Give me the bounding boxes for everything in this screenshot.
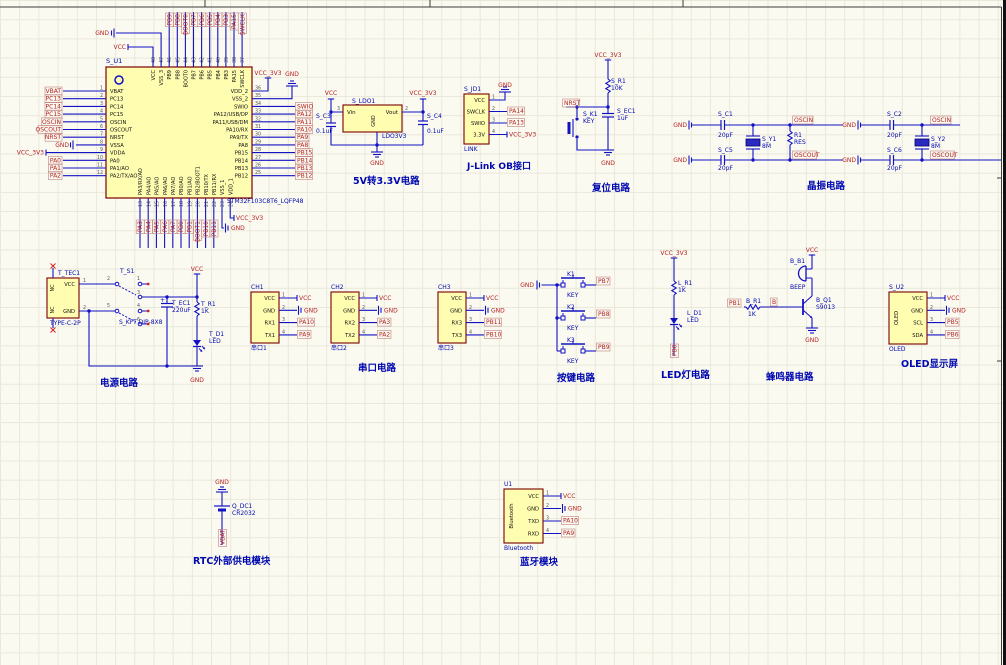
pin-name: RX1 <box>265 321 275 327</box>
ldo-designator: S_LDO1 <box>352 98 375 105</box>
pin-name: VCC <box>912 296 923 302</box>
key-contact[interactable] <box>561 316 565 320</box>
vlabel-group: 23 <box>220 201 226 207</box>
resistor-LR1[interactable] <box>672 281 676 295</box>
led-value: LED <box>687 317 699 324</box>
vlabel-group: PB6 <box>198 13 206 27</box>
pin-name: GND <box>63 309 75 315</box>
pin-name: PB3 <box>224 70 230 80</box>
oled-side-text: OLED <box>894 311 900 325</box>
power-label: VCC <box>325 90 337 97</box>
power-label: VCC_3V3 <box>409 90 436 97</box>
pin-number: 37 <box>240 57 246 63</box>
pin-number: 38 <box>232 57 238 63</box>
net-label: PA4 <box>145 221 152 232</box>
title-power: 电源电路 <box>100 377 139 389</box>
net-label: PA10 <box>563 518 578 525</box>
resistor-R1[interactable] <box>788 131 792 145</box>
vlabel-group: PA4/AO <box>146 177 152 195</box>
led-designator: L_D1 <box>687 310 702 317</box>
pin-name: PB9 <box>167 70 173 80</box>
pin-name: GND <box>263 308 275 314</box>
power-label: GND <box>805 337 819 344</box>
pin-number: 2 <box>405 106 408 112</box>
junction <box>375 143 378 146</box>
vlabel-group: 16 <box>163 201 169 207</box>
pin-number: 3 <box>337 106 340 112</box>
pin-name: PA6/AO <box>163 177 169 195</box>
transistor-BQ1 <box>803 296 812 304</box>
resistor-TR1[interactable] <box>195 302 199 316</box>
pin-name: VCC <box>451 296 462 302</box>
oled-designator: S_U2 <box>889 284 904 291</box>
net-label: PB5 <box>947 319 959 326</box>
pin-name: PA2/TX/AO <box>110 174 137 180</box>
vlabel-group: 48 <box>151 57 157 63</box>
vlabel-group: SWCLK <box>238 13 246 35</box>
power-label: GND <box>215 479 229 486</box>
net-label: OSCIN <box>794 117 813 124</box>
pin-number: 3 <box>137 290 140 296</box>
cap-designator: T_EC1 <box>171 300 191 307</box>
vlabel-group: PB10/TX <box>204 173 210 195</box>
vlabel-group: 40 <box>216 57 222 63</box>
vlabel-group: 38 <box>232 57 238 63</box>
net-label: PB5 <box>207 14 214 26</box>
pin-name: PA8 <box>238 143 248 149</box>
switch-contact[interactable] <box>115 282 119 286</box>
button-designator: S_K1 <box>583 111 598 118</box>
switch-contact[interactable] <box>138 309 142 313</box>
pin-end <box>147 283 149 285</box>
net-label: OSCIN <box>42 119 61 126</box>
resistor-value: 1K <box>201 308 210 315</box>
vlabel-group: 39 <box>224 57 230 63</box>
key-value: KEY <box>567 325 579 332</box>
vlabel-group: PB0 <box>671 344 679 358</box>
pin-number: 40 <box>216 57 222 63</box>
pin-name: OSCOUT <box>110 128 133 134</box>
pin-name: PA0 <box>110 158 120 164</box>
cap-designator: S_C4 <box>427 113 442 120</box>
power-label: VCC_3V3 <box>17 150 44 157</box>
power-label: GND <box>568 506 582 513</box>
vlabel-group: 13 <box>138 201 144 207</box>
key-contact[interactable] <box>581 283 585 287</box>
pin-name: SWIO <box>234 104 248 110</box>
pin-name: TX1 <box>264 333 275 339</box>
net-label: PA13 <box>509 120 524 127</box>
vlabel-group: PA5/AO <box>155 177 161 195</box>
cap-designator: S_C3 <box>316 113 331 120</box>
net-label: PA1 <box>50 165 61 172</box>
pin-name: PB6 <box>200 70 206 80</box>
title-bluetooth: 蓝牙模块 <box>520 556 559 568</box>
vlabel-group: PB10 <box>202 220 210 237</box>
pin-number: 42 <box>200 57 206 63</box>
vlabel-group: 45 <box>175 57 181 63</box>
resistor-SR1[interactable] <box>606 79 610 93</box>
bluetooth-part: Bluetooth <box>504 545 533 552</box>
pin-name: VSSA <box>110 143 124 149</box>
net-label: PB8 <box>175 14 182 26</box>
cap-value: 20pF <box>887 165 902 172</box>
resistor-designator: T_R1 <box>200 301 216 308</box>
junction <box>788 158 791 161</box>
net-label: PA9 <box>299 331 310 338</box>
pin-name: PB13 <box>235 166 248 172</box>
wire <box>542 285 558 351</box>
crystal-designator: S_Y1 <box>762 136 776 143</box>
vlabel-group: 46 <box>167 57 173 63</box>
power-label: GND <box>384 307 398 314</box>
net-label: PB10 <box>203 221 210 237</box>
power-label: VCC_3V3 <box>660 250 687 257</box>
power-label: GND <box>952 307 966 314</box>
resistor-designator: S_R1 <box>611 78 626 85</box>
pin-name: PA7/AO <box>171 177 177 195</box>
pin-name: GND <box>371 115 377 127</box>
pin-name: SWCLK <box>467 110 486 116</box>
power-label: GND <box>55 142 69 149</box>
mcu-part: STM32F103C8T6_LQFP48 <box>227 198 304 205</box>
button-contact[interactable] <box>575 135 578 138</box>
vlabel-group: PB9 <box>167 70 173 80</box>
resistor-value: 1K <box>678 287 687 294</box>
key-contact[interactable] <box>581 349 585 353</box>
power-label: VCC <box>563 493 575 500</box>
power-label: GND <box>231 225 245 232</box>
vlabel-group: GND <box>371 115 377 127</box>
vlabel-group: PB5 <box>208 70 214 80</box>
power-label: VCC <box>379 295 391 302</box>
net-label: PB3 <box>223 14 230 26</box>
resistor-value: 1K <box>748 311 757 318</box>
key-value: KEY <box>567 358 579 365</box>
junction <box>920 158 923 161</box>
vlabel-group: 47 <box>159 57 165 63</box>
switch-pole <box>119 286 136 295</box>
pin-name: 3.3V <box>473 133 485 139</box>
vlabel-group: 43 <box>192 57 198 63</box>
net-label: PB6 <box>199 14 206 26</box>
vlabel-group: SWCLK <box>240 69 246 87</box>
vlabel-group: PB8 <box>174 13 182 27</box>
ch2-designator: CH2 <box>331 284 344 291</box>
vlabel-group: PB11 <box>210 220 218 237</box>
net-label: OSCOUT <box>794 152 820 159</box>
pin-end <box>147 323 149 325</box>
vlabel-group: PB6 <box>200 70 206 80</box>
pin-name: VDD_2 <box>231 89 248 95</box>
pin-number: 13 <box>138 201 144 207</box>
power-label: VCC <box>486 295 498 302</box>
pin-number: 19 <box>187 201 193 207</box>
typec-designator: T_TEC1 <box>57 270 80 277</box>
title-keys: 按键电路 <box>557 372 596 384</box>
vlabel-group: PB0/AO <box>179 176 185 195</box>
cap-designator: S_C2 <box>887 111 902 118</box>
vlabel-group: 24 <box>228 201 234 207</box>
title-rtc: RTC外部供电模块 <box>193 555 271 567</box>
cap-value: 1uF <box>617 115 629 122</box>
net-label: SWCLK <box>239 13 246 35</box>
net-label: PB6 <box>947 331 959 338</box>
pin-name: SDA <box>912 333 923 339</box>
power-label: VCC_3V3 <box>509 132 536 139</box>
pin-number: 14 <box>146 201 152 207</box>
vlabel-group: 21 <box>204 201 210 207</box>
pin-name: PB15 <box>235 151 248 157</box>
vlabel-group: 44 <box>183 57 189 63</box>
pin-number: 24 <box>228 201 234 207</box>
crystal[interactable] <box>746 139 760 146</box>
key-contact[interactable] <box>561 349 565 353</box>
pin-end <box>147 310 149 312</box>
vlabel-group: PB3 <box>222 13 230 27</box>
cap-value: 20pF <box>718 165 733 172</box>
schematic-sheet: S_U1STM32F103C8T6_LQFP48VBAT1VBATPC132PC… <box>0 0 1006 665</box>
switch-contact[interactable] <box>138 282 142 286</box>
power-label: VCC <box>947 295 959 302</box>
pin-name: BOOT0 <box>183 70 189 87</box>
net-label: PC15 <box>46 111 62 118</box>
pin-name: VCC <box>264 296 275 302</box>
power-label: GND <box>370 160 384 167</box>
pin-number: 44 <box>183 57 189 63</box>
net-label: PA10 <box>297 127 312 134</box>
button-value: KEY <box>583 118 595 125</box>
ch1-part: 串口1 <box>251 344 267 352</box>
net-label: PB0 <box>672 344 679 356</box>
pin-name: VBAT <box>110 89 124 95</box>
net-label: PA6 <box>162 221 169 232</box>
pin-name: PB7 <box>192 70 198 80</box>
power-label: GND <box>498 82 512 89</box>
title-serial: 串口电路 <box>358 362 397 374</box>
net-label: PA2 <box>50 173 61 180</box>
power-label: GND <box>285 71 299 78</box>
title-reset: 复位电路 <box>591 182 631 194</box>
pin-name: Vout <box>386 110 399 116</box>
pin-name: Vin <box>347 110 356 116</box>
buzzer[interactable] <box>799 266 806 281</box>
resistor-designator: L_R1 <box>678 280 693 287</box>
bluetooth-designator: U1 <box>504 481 512 488</box>
ldo-part: LDO3V3 <box>382 133 407 140</box>
pin-name: PB4 <box>216 70 222 80</box>
pin-name: VCC <box>344 296 355 302</box>
pin-number: 1 <box>83 278 86 284</box>
jlink-designator: S_JD1 <box>464 86 481 93</box>
pin-name: PA3/RX/AO <box>138 168 144 195</box>
vlabel-group: PB7 <box>190 13 198 27</box>
vlabel-group: PB1/AO <box>187 176 193 195</box>
power-label: GND <box>673 122 687 129</box>
vlabel-group: PB1 <box>185 220 193 234</box>
net-label: PA11 <box>297 119 312 126</box>
pin-name: PB5 <box>208 70 214 80</box>
transistor-BQ1 <box>803 310 812 318</box>
led-LD1[interactable] <box>670 318 678 324</box>
pin-name: PA5/AO <box>155 177 161 195</box>
pin-name: RXD <box>528 532 539 538</box>
pin-name: PB1/AO <box>187 176 193 195</box>
vlabel-group: NC <box>50 284 56 292</box>
battery-designator: Q_DC1 <box>232 503 253 510</box>
pin-name: RX2 <box>345 321 355 327</box>
pin-name: PA9/TX <box>230 135 249 141</box>
pin-name: SWIO <box>471 121 485 127</box>
net-label: PA12 <box>297 111 312 118</box>
pin-name: VSS_2 <box>232 97 248 103</box>
pin-name: TX3 <box>451 333 462 339</box>
pin-number: 21 <box>204 201 210 207</box>
key-contact[interactable] <box>581 316 585 320</box>
jlink-part: LINK <box>464 146 479 153</box>
power-label: GND <box>673 157 687 164</box>
transistor-value: S9013 <box>816 304 835 311</box>
vlabel-group: VDD_1 <box>228 178 234 195</box>
power-label: GND <box>304 307 318 314</box>
crystal[interactable] <box>915 139 929 146</box>
pin-name: NC <box>50 284 56 292</box>
cap-value: 0.1uF <box>316 128 333 135</box>
title-buzzer: 蜂鸣器电路 <box>766 371 814 383</box>
net-label: PB4 <box>215 14 222 26</box>
pin-number: 5 <box>107 303 110 309</box>
net-label: PA9 <box>297 134 308 141</box>
cap-designator: S_EC1 <box>617 108 636 115</box>
vlabel-group: PB3 <box>224 70 230 80</box>
button-contact[interactable] <box>575 117 578 120</box>
net-label: PB1 <box>729 300 741 307</box>
net-label: PC14 <box>46 103 62 110</box>
pin-number: 2 <box>83 305 86 311</box>
net-label: PA8 <box>297 142 308 149</box>
bluetooth-side-text: Bluetooth <box>509 503 515 528</box>
power-label: VCC <box>299 295 311 302</box>
vlabel-group: BOOT0 <box>182 13 190 35</box>
pin-number: 48 <box>151 57 157 63</box>
net-label: BOOT1 <box>195 221 202 242</box>
cap-value: 20pF <box>718 132 733 139</box>
vlabel-group: VBAT <box>219 529 227 546</box>
junction <box>751 123 754 126</box>
switch-designator: T_S1 <box>119 268 134 275</box>
vlabel-group: 20 <box>196 201 202 207</box>
pin-number: 39 <box>224 57 230 63</box>
pin-number: 23 <box>220 201 226 207</box>
pin-number: 18 <box>179 201 185 207</box>
net-label: PA9 <box>563 530 574 537</box>
net-label: OSCIN <box>932 117 951 124</box>
pin-number: 46 <box>167 57 173 63</box>
vlabel-group: PB4 <box>216 70 222 80</box>
pin-name: PA10/RX <box>226 128 248 134</box>
vlabel-group: PA4 <box>144 220 152 234</box>
power-label: GND <box>601 160 615 167</box>
vlabel-group: NC <box>50 306 56 314</box>
vlabel-group: PB7 <box>192 70 198 80</box>
pin-name: PB11/RX <box>212 173 218 195</box>
led-TD1[interactable] <box>193 340 201 346</box>
power-label: GND <box>190 377 204 384</box>
pin-name: PC13 <box>110 97 123 103</box>
net-label: PA10 <box>299 319 314 326</box>
pin-number: 4 <box>137 303 140 309</box>
vlabel-group: VSS_1 <box>220 180 226 195</box>
title-ldo: 5V转3.3V电路 <box>353 175 420 187</box>
vlabel-group: PA15 <box>232 70 238 82</box>
crystal-designator: S_Y2 <box>931 136 945 143</box>
cap-designator: S_C5 <box>718 147 733 154</box>
pin-number: 22 <box>212 201 218 207</box>
button-SK1[interactable] <box>568 122 571 134</box>
net-label: PB11 <box>211 221 218 237</box>
pin-name: PB10/TX <box>204 173 210 195</box>
vlabel-group: PA7/AO <box>171 177 177 195</box>
power-label: VCC <box>191 266 203 273</box>
typec-part: TYPE-C-2P <box>49 320 81 327</box>
cap-designator: S_C6 <box>887 147 902 154</box>
oled-part: OLED <box>889 346 906 353</box>
vlabel-group: PB2/BOOT1 <box>196 166 202 195</box>
vlabel-group: 14 <box>146 201 152 207</box>
title-oled: OLED显示屏 <box>901 359 959 370</box>
pin-number: 1 <box>137 276 140 282</box>
pin-number: 2 <box>107 276 110 282</box>
key-value: KEY <box>567 292 579 299</box>
resistor-designator: B_R1 <box>746 298 761 305</box>
switch-contact[interactable] <box>115 309 119 313</box>
net-label: NRST <box>564 100 580 107</box>
net-label: NRST <box>45 134 61 141</box>
junction <box>920 123 923 126</box>
pin-name: VDD_1 <box>228 178 234 195</box>
power-label: GND <box>842 157 856 164</box>
net-label: PA14 <box>509 108 524 115</box>
vlabel-group: PB0 <box>177 220 185 234</box>
pin-name: PA12/USB/DP <box>214 112 248 118</box>
mcu-designator: S_U1 <box>106 57 122 65</box>
resistor-value: RES <box>794 139 806 146</box>
power-label: VCC_3V3 <box>236 215 263 222</box>
vlabel-group: PB8 <box>175 70 181 80</box>
battery-value: CR2032 <box>232 510 256 517</box>
power-label: GND <box>491 307 505 314</box>
buzzer-value: BEEP <box>790 284 806 291</box>
net-label: PB7 <box>191 14 198 26</box>
led-designator: T_D1 <box>208 331 224 338</box>
pin-number: 16 <box>163 201 169 207</box>
pin-name: PB2/BOOT1 <box>196 166 202 195</box>
net-label: PA2 <box>379 331 390 338</box>
vlabel-group: PA3/RX/AO <box>138 168 144 195</box>
led-value: LED <box>209 338 221 345</box>
title-crystal: 晶振电路 <box>807 180 846 192</box>
key-contact[interactable] <box>561 283 565 287</box>
power-label: VCC <box>806 247 818 254</box>
vlabel-group: PA6 <box>161 220 169 234</box>
resistor-BR1[interactable] <box>746 305 760 309</box>
net-label: BOOT0 <box>183 14 190 35</box>
title-jlink: J-Link OB接口 <box>466 160 531 172</box>
net-label: PC13 <box>46 96 62 103</box>
net-label: PB13 <box>297 165 313 172</box>
vlabel-group: PB9 <box>165 13 173 27</box>
vlabel-group: PA6/AO <box>163 177 169 195</box>
